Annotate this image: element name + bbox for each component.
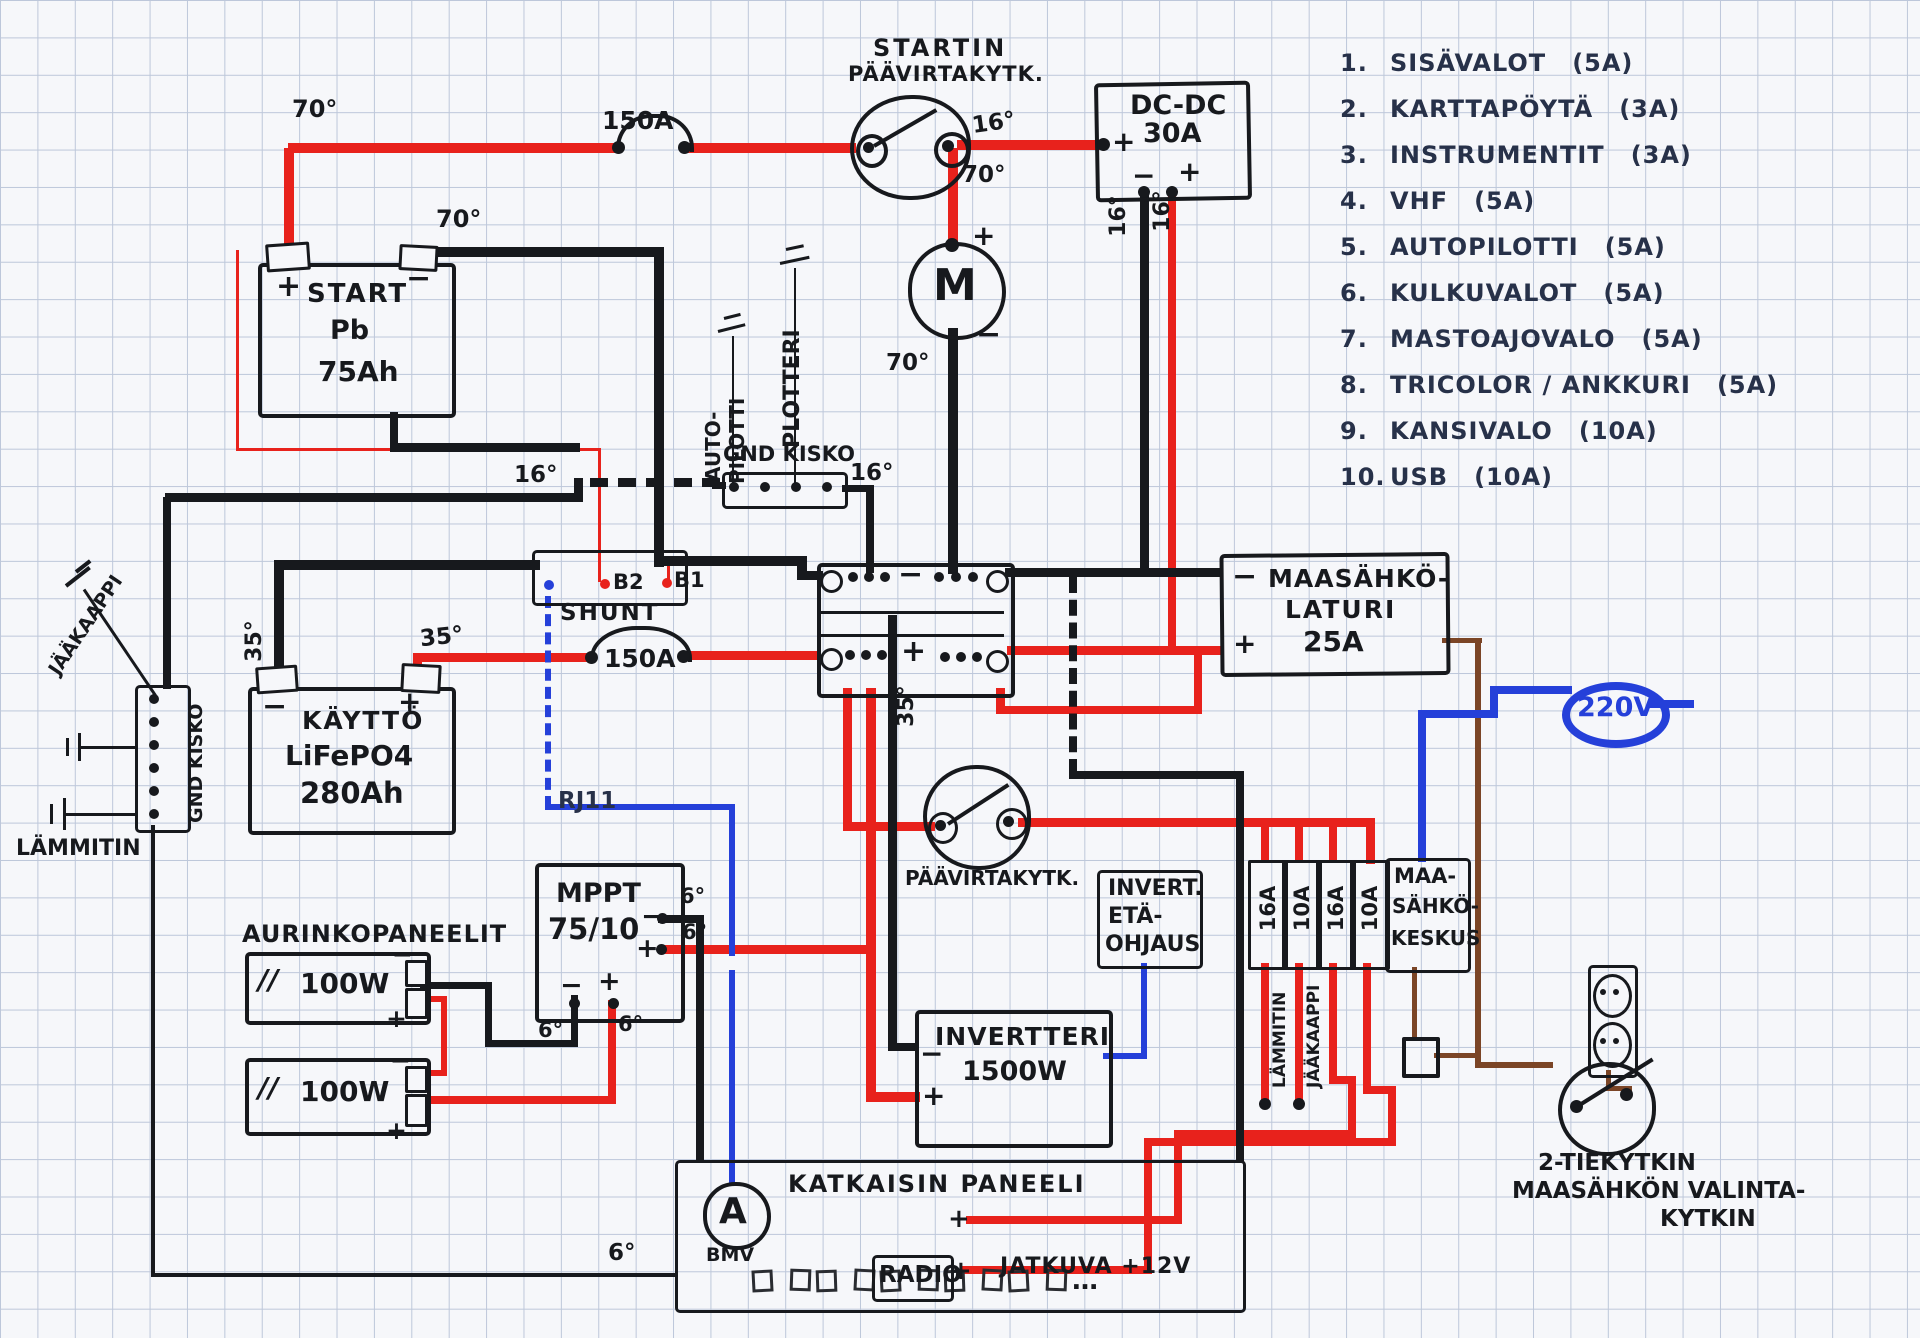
motor-pos-dot	[945, 238, 959, 252]
wire-gnd-step	[574, 478, 583, 502]
fuse-list: 1. SISÄVALOT (5A) 2. KARTTAPÖYTÄ (3A) 3.…	[1340, 40, 1778, 500]
fuse-rating: (5A)	[1474, 187, 1535, 215]
fuse-dot	[677, 650, 690, 663]
gauge-switch-out: 16°	[971, 109, 1017, 138]
wire-keskus-down	[1412, 967, 1417, 1041]
heater-bar1a	[78, 733, 81, 761]
fuse-name: KANSIVALO	[1390, 417, 1553, 445]
wire-mppt-pos-out	[663, 945, 868, 954]
mppt-name: MPPT	[556, 880, 641, 907]
solar-panel2-watts: 100W	[300, 1078, 389, 1106]
fuse-rating: (10A)	[1579, 417, 1658, 445]
wire-sense-v1	[236, 250, 239, 450]
fuse-num: 3.	[1340, 141, 1390, 169]
dist-dot-neg	[934, 572, 944, 582]
fuse-list-row: 9. KANSIVALO (10A)	[1340, 408, 1778, 454]
radio-plus: +	[950, 1258, 972, 1284]
shore-charger-line2: LATURI	[1285, 597, 1396, 622]
shore-panel-line1: MAA-	[1394, 866, 1456, 887]
wire-mppt-in-neg2	[485, 1040, 578, 1047]
wire-fuse-to-bus-pos	[681, 651, 821, 660]
fuse-rating: (3A)	[1619, 95, 1680, 123]
wire-load3-down2	[1348, 1076, 1356, 1136]
shunt-b2: B2	[613, 572, 644, 593]
heater-bar2a	[63, 798, 66, 830]
gnd-bus-left-box	[135, 685, 191, 833]
shore-panel-line3: KESKUS	[1391, 928, 1480, 948]
fuse-num: 4.	[1340, 187, 1390, 215]
fuse-num: 5.	[1340, 233, 1390, 261]
wire-panelgnd-h	[1069, 771, 1244, 779]
shore-charger-line1: MAASÄHKÖ-	[1268, 566, 1449, 591]
fuse-num: 2.	[1340, 95, 1390, 123]
fuse-rating: (5A)	[1717, 371, 1778, 399]
fuse-150a-mid-label: 150A	[604, 646, 676, 671]
start-battery-minus: −	[406, 264, 431, 294]
terminal-dot	[942, 140, 954, 152]
fuse-cell-3-label: 16A	[1326, 886, 1347, 931]
start-battery-plus: +	[276, 272, 301, 302]
wire-ac-v2	[1418, 710, 1426, 862]
bus-dot	[149, 740, 159, 750]
fuse-list-row: 7. MASTOAJOVALO (5A)	[1340, 316, 1778, 362]
plotter-antenna-bar2	[786, 244, 804, 251]
fuse-name: USB	[1390, 463, 1448, 491]
solar-panel2-pos-post	[405, 1094, 428, 1127]
gauge-mid-bus: 16°	[514, 464, 558, 487]
gauge-motor-neg: 70°	[886, 352, 930, 375]
wire-load4-down	[1363, 963, 1371, 1093]
start-battery-pos-post	[265, 241, 311, 272]
dist-dot-pos	[972, 652, 982, 662]
breaker-square	[751, 1269, 773, 1292]
wire-start-pos-up	[284, 148, 294, 248]
inverter-remote-line3: OHJAUS	[1105, 934, 1200, 956]
dist-plus: +	[901, 637, 926, 667]
breaker-square	[816, 1270, 838, 1293]
dist-terminal	[820, 648, 843, 671]
dist-dot-neg	[864, 572, 874, 582]
solar-panel1-plus: +	[386, 1006, 407, 1031]
fuse-dot	[678, 141, 691, 154]
gauge-start-neg: 70°	[436, 207, 481, 231]
wire-ac-h2	[1418, 710, 1498, 718]
wire-bus-to-inverter-v	[866, 688, 876, 1100]
inverter-remote-line2: ETÄ-	[1108, 906, 1162, 928]
wire-gnd-branch	[390, 443, 580, 452]
dist-terminal	[820, 570, 843, 593]
fuse-list-row: 1. SISÄVALOT (5A)	[1340, 40, 1778, 86]
shore-charger-plus: +	[1233, 630, 1256, 658]
wire-ac-h1	[1490, 686, 1572, 694]
wire-square-join	[1434, 1053, 1479, 1058]
wire-load3-down	[1329, 963, 1337, 1083]
dist-dot-pos	[956, 652, 966, 662]
wire-start-neg-v	[654, 247, 664, 567]
socket-pin	[1600, 1038, 1606, 1044]
solar-panel1-watts: 100W	[300, 970, 389, 998]
shunt-b2-dot	[600, 579, 610, 589]
start-battery-name: START	[307, 281, 408, 307]
starter-switch-label2: PÄÄVIRTAKYTK.	[848, 64, 1044, 85]
wire-mppt-in-neg3	[485, 982, 492, 1047]
transfer-switch-line1: 2-TIEKYTKIN	[1538, 1152, 1696, 1175]
fuse-name: TRICOLOR / ANKKURI	[1390, 371, 1691, 399]
gauge-life-neg: 35°	[244, 620, 266, 662]
dist-dot-pos	[940, 652, 950, 662]
fuse-list-row: 10. USB (10A)	[1340, 454, 1778, 500]
wire-brown-v	[1475, 638, 1481, 1068]
inverter-name: INVERTTERI	[935, 1024, 1110, 1049]
fuse-num: 9.	[1340, 417, 1390, 445]
bus-dot	[760, 482, 770, 492]
terminal-dot	[1620, 1088, 1633, 1101]
wire-bus-pos-loop-up	[1194, 652, 1202, 714]
bus-dot	[822, 482, 832, 492]
wire-rj-v1	[729, 804, 735, 956]
bus-dot	[149, 763, 159, 773]
wire-mppt-in-pos-h	[425, 1096, 616, 1104]
ac-inlet-voltage: 220V	[1577, 694, 1654, 721]
gauge-dist-pos: 35°	[896, 685, 918, 727]
wire-load4-down2	[1388, 1086, 1396, 1144]
wire-load1-down	[1261, 963, 1269, 1101]
wire-fuseblock-feed2	[1295, 826, 1303, 862]
rj11-label: RJ11	[558, 790, 616, 813]
inverter-remote-line1: INVERT.	[1108, 878, 1203, 900]
fuse-name: MASTOAJOVALO	[1390, 325, 1616, 353]
fuse-list-row: 3. INSTRUMENTIT (3A)	[1340, 132, 1778, 178]
dcdc-in-dot	[1097, 138, 1110, 151]
fuse-rating: (5A)	[1572, 49, 1633, 77]
fuse-cell-4-label: 10A	[1360, 886, 1381, 931]
dist-terminal	[986, 650, 1009, 673]
dist-terminal	[986, 570, 1009, 593]
wire-remote-v	[1141, 963, 1147, 1059]
solar-panel1-pos-post	[405, 988, 428, 1019]
wire-dcdc-neg-down	[1140, 193, 1149, 573]
gauge-life-pos: 35°	[419, 624, 465, 651]
fuse-num: 6.	[1340, 279, 1390, 307]
gnd-bus-left-label: GND KISKO	[187, 698, 206, 823]
fuse-rating: (10A)	[1474, 463, 1553, 491]
wire-brown-to-switch	[1475, 1062, 1553, 1068]
plotter-label: PLOTTERI	[782, 278, 804, 448]
inverter-minus: −	[920, 1040, 943, 1068]
fuse-rating: (3A)	[1631, 141, 1692, 169]
gauge-gnd-bus: 16°	[850, 462, 894, 485]
gauge-mppt-in-pos: 6°	[618, 1014, 643, 1035]
wire-rj-v2	[729, 970, 735, 1184]
solar-panel2-minus: −	[390, 1048, 411, 1073]
dcdc-neg-dot	[1138, 186, 1150, 198]
house-battery-name: KÄYTTÖ	[302, 708, 424, 733]
wire-gnd-run-v	[151, 825, 155, 1277]
shunt-blue-dot	[544, 580, 554, 590]
wire-panel-link2	[441, 996, 447, 1076]
fuse-name: SISÄVALOT	[1390, 49, 1546, 77]
solar-panel1-minus: −	[392, 942, 413, 967]
gauge-gnd-run: 6°	[608, 1242, 636, 1265]
wire-bus-to-laturi-neg	[1005, 568, 1223, 577]
inverter-rating: 1500W	[962, 1058, 1067, 1085]
heater-bar2b	[50, 804, 53, 824]
mppt-in-minus: −	[560, 972, 583, 999]
dcdc-in-plus: +	[1112, 128, 1135, 156]
wire-dcdc-pos-down	[1168, 193, 1176, 655]
dist-dot-pos	[861, 650, 871, 660]
wire-gnd-left-v	[163, 497, 171, 689]
fuse-name: VHF	[1390, 187, 1448, 215]
wire-rj-dash	[545, 596, 551, 808]
wire-bus-to-laturi-pos	[1007, 646, 1222, 655]
shore-charger-rating: 25A	[1303, 628, 1364, 656]
gauge-top-red: 70°	[292, 97, 337, 121]
shunt-b1-dot	[662, 578, 672, 588]
heater-bar1b	[66, 738, 69, 756]
motor-plus: +	[972, 222, 995, 250]
fuse-name: AUTOPILOTTI	[1390, 233, 1579, 261]
mppt-dot	[608, 998, 619, 1009]
radio-feed-label: JATKUVA +12V	[1000, 1256, 1191, 1278]
bus-dot	[149, 717, 159, 727]
gauge-dcdc-neg: 16°	[1108, 195, 1130, 237]
fuse-list-row: 6. KULKUVALOT (5A)	[1340, 270, 1778, 316]
wire-panelgnd-dash	[1069, 577, 1077, 775]
autopilot-label1: AUTO-	[703, 352, 723, 482]
bus-dot	[149, 809, 159, 819]
shore-panel-line2: SÄHKÖ-	[1392, 896, 1479, 916]
inverter-plus: +	[922, 1082, 945, 1110]
gauge-mppt-in-neg: 6°	[538, 1020, 563, 1041]
load2-end-dot	[1293, 1098, 1305, 1110]
dist-dot-neg	[880, 572, 890, 582]
solar-title: AURINKOPANEELIT	[242, 922, 507, 946]
mppt-dot	[569, 998, 580, 1009]
wire-panelfeed-top	[1174, 1130, 1356, 1138]
wire-fuseblock-feed1	[1261, 826, 1269, 862]
fuse-num: 8.	[1340, 371, 1390, 399]
load1-end-dot	[1259, 1098, 1271, 1110]
wiring-diagram-paper: + − START Pb 75Ah 150A STARTIN PÄÄVIRTAK…	[0, 0, 1920, 1338]
wire-fuseblock-feed3	[1329, 826, 1337, 862]
wire-gnd-run-h	[151, 1273, 677, 1277]
shore-connector-square	[1402, 1037, 1440, 1078]
gauge-mppt-out-neg: 6°	[680, 886, 705, 907]
breaker-panel-title: KATKAISIN PANEELI	[788, 1172, 1086, 1196]
fridge-label: JÄÄKAAPPI	[46, 572, 126, 678]
solar-panel2-hatch: //	[258, 1074, 278, 1102]
fuse-dot	[585, 651, 598, 664]
autopilot-antenna-bar1	[718, 323, 746, 333]
breaker-square	[790, 1269, 812, 1292]
wire-switch-to-dcdc	[957, 140, 1103, 150]
fuse-name: KARTTAPÖYTÄ	[1390, 95, 1593, 123]
fuse-dot	[612, 141, 625, 154]
gauge-mppt-out-pos: 6°	[682, 922, 707, 943]
terminal-dot	[935, 820, 946, 831]
wire-top-red	[288, 143, 620, 153]
mppt-dot	[656, 944, 667, 955]
gauge-switch-down: 70°	[962, 164, 1006, 187]
dist-block-divider1	[820, 611, 1004, 614]
wire-fuse-to-switch	[684, 143, 856, 153]
transfer-switch-line3: KYTKIN	[1660, 1208, 1756, 1231]
socket-pin	[1613, 989, 1619, 995]
transfer-switch-line2: MAASÄHKÖN VALINTA-	[1512, 1180, 1805, 1203]
fuse-name: INSTRUMENTIT	[1390, 141, 1605, 169]
wire-life-pos-to-fuse	[413, 653, 595, 662]
wire-load2-down	[1295, 963, 1303, 1101]
start-battery-capacity: 75Ah	[318, 358, 399, 386]
panel-feed-plus: +	[948, 1206, 970, 1232]
wire-panelgnd-v	[1236, 771, 1244, 1163]
wire-motor-neg	[948, 328, 958, 574]
fuse-list-row: 4. VHF (5A)	[1340, 178, 1778, 224]
dist-dot-neg	[968, 572, 978, 582]
mppt-rating: 75/10	[548, 915, 639, 944]
motor-m: M	[933, 264, 977, 308]
solar-panel1-hatch: //	[258, 966, 278, 994]
house-battery-capacity: 280Ah	[300, 779, 404, 808]
wire-bus-to-mainswitch-v	[843, 688, 852, 830]
shore-charger-minus: −	[1232, 562, 1257, 592]
wire-gndbus-right-down	[866, 485, 874, 573]
dist-dot-neg	[951, 572, 961, 582]
house-battery-minus: −	[262, 692, 287, 722]
heater-stub1	[80, 746, 135, 749]
wire-gnd-main-h	[165, 493, 577, 502]
dcdc-rating: 30A	[1143, 120, 1201, 147]
terminal-dot	[1003, 816, 1014, 827]
motor-minus: −	[976, 320, 1001, 350]
dist-minus: −	[898, 560, 923, 590]
wire-life-neg-h	[274, 560, 540, 570]
dist-dot-neg	[848, 572, 858, 582]
heater-label: LÄMMITIN	[16, 838, 141, 860]
wire-radiofeed-top	[1144, 1138, 1396, 1146]
fuse-num: 10.	[1340, 463, 1390, 491]
fuse-name: KULKUVALOT	[1390, 279, 1577, 307]
dcdc-out-plus: +	[1178, 158, 1201, 186]
mppt-in-plus: +	[598, 968, 621, 995]
plotter-antenna-bar1	[780, 256, 810, 265]
bus-dot	[149, 786, 159, 796]
fuse-num: 7.	[1340, 325, 1390, 353]
socket-outlet-top	[1593, 974, 1632, 1018]
fuse-list-row: 2. KARTTAPÖYTÄ (3A)	[1340, 86, 1778, 132]
heater-stub2	[66, 813, 136, 816]
house-battery-type: LiFePO4	[285, 742, 413, 770]
dist-dot-pos	[877, 650, 887, 660]
wire-fuseblock-feed4	[1366, 824, 1375, 864]
start-battery-type: Pb	[330, 317, 369, 344]
fuse-150a-top-label: 150A	[602, 108, 674, 133]
fuse-rating: (5A)	[1605, 233, 1666, 261]
gauge-dcdc-pos: 16°	[1152, 190, 1174, 232]
bmv-label: BMV	[706, 1246, 754, 1265]
mppt-dot	[657, 913, 668, 924]
socket-pin	[1613, 1038, 1619, 1044]
wire-bus-pos-loop-h	[996, 706, 1202, 714]
wire-mppt-neg-out-v	[696, 915, 704, 1163]
fuse-list-row: 5. AUTOPILOTTI (5A)	[1340, 224, 1778, 270]
wire-start-neg-h	[428, 247, 664, 257]
socket-pin	[1600, 989, 1606, 995]
dist-dot-pos	[845, 650, 855, 660]
fuse-cell-1-label: 16A	[1258, 886, 1279, 931]
dcdc-name: DC-DC	[1130, 92, 1226, 119]
wire-inverter-neg-stub	[888, 1043, 918, 1051]
fuse-rating: (5A)	[1642, 325, 1703, 353]
fuse-load2-label: JÄÄKAAPPI	[1306, 968, 1323, 1088]
fuse-rating: (5A)	[1603, 279, 1664, 307]
shunt-b1: B1	[674, 570, 705, 591]
bus-dot	[791, 482, 801, 492]
autopilot-antenna-bar2	[724, 313, 741, 320]
wire-mainswitch-to-fuses	[1018, 818, 1375, 827]
wire-bus-to-inverter-h	[866, 1092, 920, 1102]
fuse-num: 1.	[1340, 49, 1390, 77]
shunt-label: SHUNT	[560, 602, 659, 625]
main-switch-label: PÄÄVIRTAKYTK.	[905, 868, 1079, 888]
autopilot-label2: PILOTTI	[727, 344, 747, 484]
fuse-cell-2-label: 10A	[1292, 886, 1313, 931]
bmv-meter-a: A	[719, 1194, 747, 1230]
solar-panel2-plus: +	[386, 1118, 407, 1143]
fuse-load1-label: LÄMMITIN	[1272, 968, 1289, 1088]
starter-switch-label1: STARTIN	[873, 36, 1007, 60]
fuse-list-row: 8. TRICOLOR / ANKKURI (5A)	[1340, 362, 1778, 408]
